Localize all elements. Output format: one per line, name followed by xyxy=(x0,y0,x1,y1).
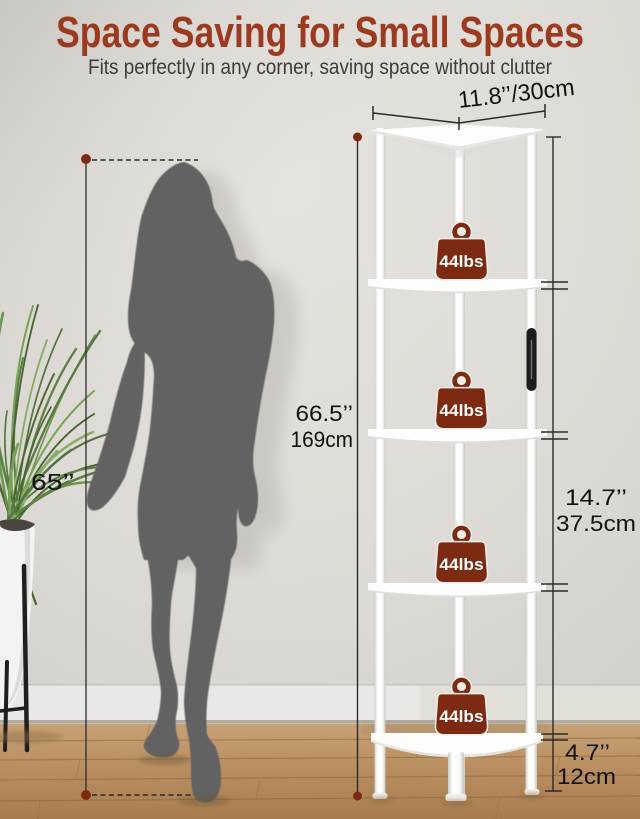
svg-text:Fits perfectly in any corner,: Fits perfectly in any corner, saving spa… xyxy=(88,56,552,79)
svg-text:Space Saving for Small Spaces: Space Saving for Small Spaces xyxy=(56,8,584,57)
svg-text:37.5cm: 37.5cm xyxy=(556,511,636,536)
svg-text:12cm: 12cm xyxy=(557,764,616,789)
svg-text:14.7’’: 14.7’’ xyxy=(565,485,627,510)
svg-text:169cm: 169cm xyxy=(291,427,354,452)
svg-text:65’’: 65’’ xyxy=(31,469,75,495)
svg-text:66.5’’: 66.5’’ xyxy=(296,401,354,426)
svg-text:4.7’’: 4.7’’ xyxy=(565,740,610,765)
